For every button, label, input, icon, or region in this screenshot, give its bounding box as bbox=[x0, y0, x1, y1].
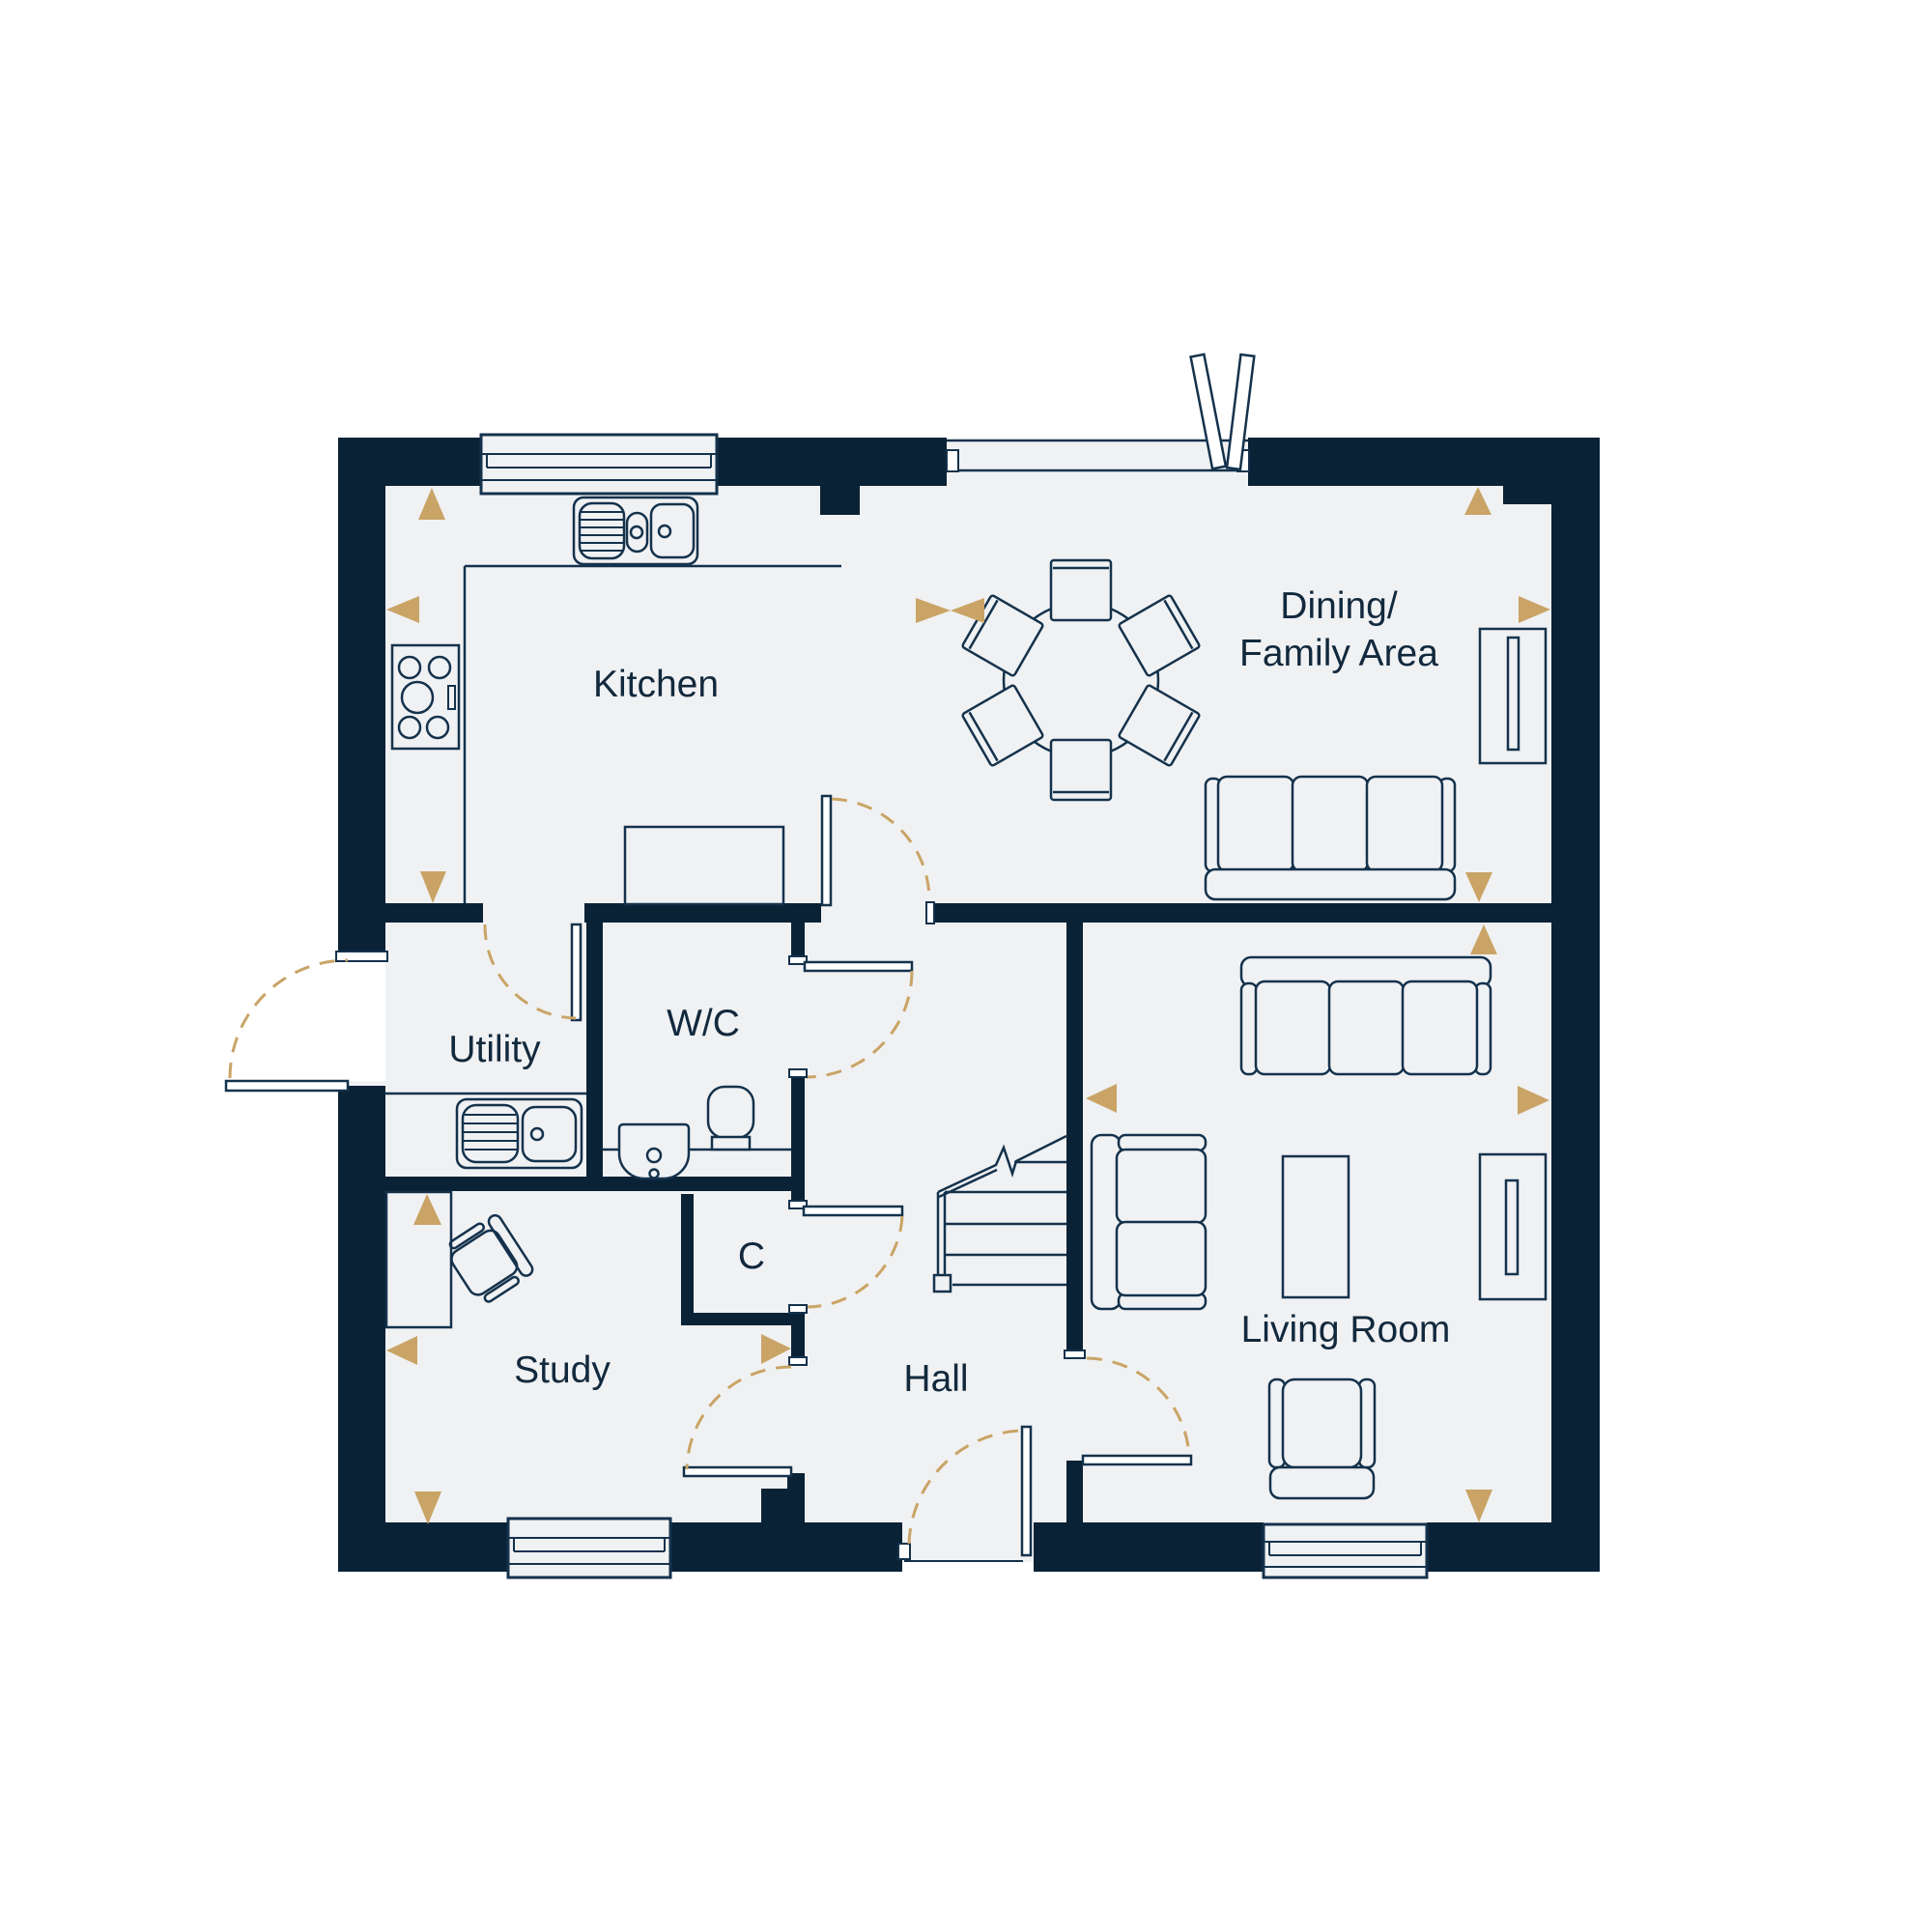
svg-text:Kitchen: Kitchen bbox=[593, 664, 719, 705]
svg-text:Dining/: Dining/ bbox=[1280, 585, 1398, 627]
svg-text:Study: Study bbox=[514, 1350, 611, 1391]
svg-text:W/C: W/C bbox=[667, 1003, 740, 1044]
svg-text:Family Area: Family Area bbox=[1239, 633, 1438, 674]
svg-text:Living Room: Living Room bbox=[1241, 1309, 1451, 1350]
svg-text:Utility: Utility bbox=[448, 1029, 541, 1070]
svg-text:Hall: Hall bbox=[903, 1358, 968, 1400]
svg-text:C: C bbox=[738, 1236, 765, 1277]
